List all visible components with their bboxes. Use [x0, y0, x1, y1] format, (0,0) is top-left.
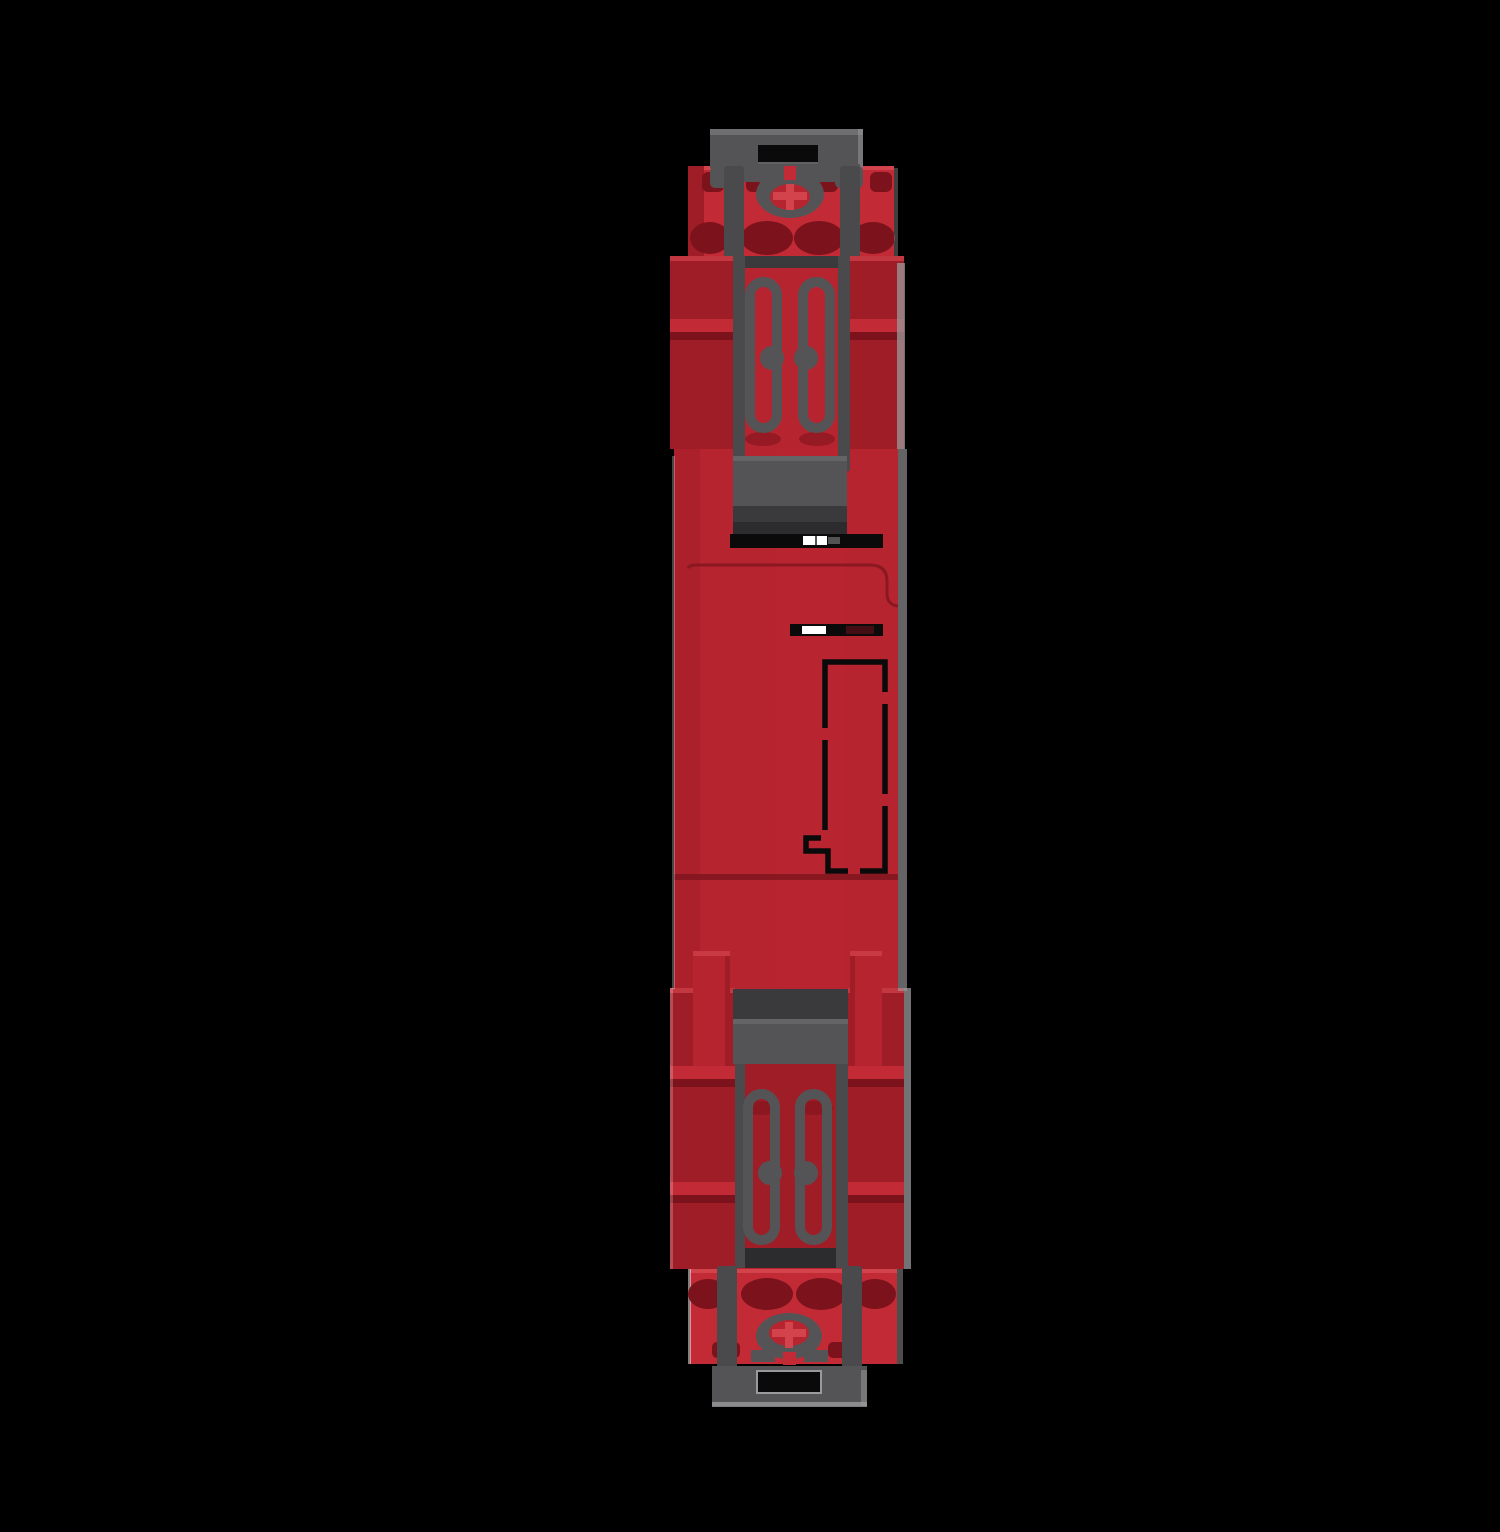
latch-plate-lower	[733, 506, 847, 524]
contact-boss	[758, 1161, 782, 1185]
window-top-shadow	[745, 256, 838, 268]
right-edge-highlight	[897, 1269, 903, 1364]
upper-flange-left-edge	[670, 256, 733, 261]
clip-top-bar-edge	[710, 129, 863, 135]
upper-flange-right-edge	[850, 256, 904, 261]
flange-rib	[670, 1182, 735, 1195]
flange-rib	[670, 319, 733, 332]
clip-arm-right	[842, 1266, 862, 1378]
carriage-plate-edge	[733, 1019, 848, 1024]
slot-gray-chip	[828, 537, 840, 544]
latch-plate-foot	[733, 522, 847, 536]
terminal-notch	[870, 172, 892, 192]
slot-marker-divider	[815, 536, 817, 545]
carriage-plate	[733, 1019, 848, 1064]
loop-shadow	[799, 432, 835, 446]
screw-cross-horizontal	[772, 1329, 806, 1337]
flange-rib	[848, 1066, 904, 1079]
window-rail-right	[838, 256, 850, 471]
clip-plate-right-highlight	[861, 1370, 867, 1406]
wire-port	[796, 1278, 846, 1310]
product-render: Red modular DIN-rail device with grey mo…	[40, 16, 1500, 1516]
post-left-cap	[693, 951, 730, 956]
slot-red-tint	[846, 626, 874, 634]
right-edge-highlight	[898, 449, 907, 991]
post-left-shade	[725, 956, 730, 1066]
right-edge-highlight	[897, 263, 905, 449]
flange-rib	[670, 1066, 735, 1079]
terminal-block-right-highlight	[894, 168, 898, 266]
flange-rib-shadow	[848, 1195, 904, 1203]
lower-clip-carriage	[733, 989, 848, 1268]
clip-arm-left	[717, 1266, 737, 1378]
screw-cross-horizontal	[773, 192, 807, 200]
clip-rail-slot	[757, 1371, 821, 1393]
flange-rib-shadow	[670, 1195, 735, 1203]
post-left	[693, 951, 730, 1066]
latch-slot	[730, 534, 883, 548]
loop-shadow	[745, 432, 781, 446]
left-edge-highlight	[670, 988, 673, 1269]
post-right-shade	[850, 956, 855, 1066]
left-edge-highlight	[672, 456, 675, 989]
right-edge-highlight	[904, 988, 911, 1269]
flange-rib-shadow	[670, 332, 733, 340]
post-right-cap	[850, 951, 882, 956]
wire-port	[741, 1278, 793, 1310]
window-rail-left	[733, 256, 745, 471]
flange-rib-shadow	[850, 332, 904, 340]
clip-plate-bottom-highlight	[712, 1402, 867, 1407]
contact-boss	[794, 346, 818, 370]
upper-flange-left	[670, 256, 733, 449]
flange-rib-shadow	[848, 1079, 904, 1087]
contact-boss	[794, 1161, 818, 1185]
terminal-block-left-highlight	[688, 1269, 691, 1364]
upper-housing	[670, 256, 904, 449]
wire-port	[741, 221, 793, 255]
contact-boss	[760, 346, 784, 370]
latch-plate-edge	[733, 456, 847, 461]
latch-plate	[733, 456, 847, 508]
slot-white-marker	[802, 626, 826, 634]
housing-ridge-line	[674, 874, 898, 880]
center-left-shade	[674, 449, 700, 991]
ring-notch	[783, 1352, 796, 1365]
carriage-frame-right	[836, 1064, 848, 1268]
device-illustration	[40, 16, 1500, 1516]
marking-slot	[790, 624, 883, 636]
carriage-top-bar	[733, 989, 848, 1019]
clip-top-bar-right-highlight	[858, 129, 863, 168]
flange-rib	[848, 1182, 904, 1195]
upper-flange-right	[850, 256, 904, 449]
flange-rib	[850, 319, 904, 332]
carriage-window-shadow	[745, 1248, 836, 1268]
flange-rib-shadow	[670, 1079, 735, 1087]
ring-notch	[784, 166, 796, 180]
wire-port	[794, 221, 844, 255]
